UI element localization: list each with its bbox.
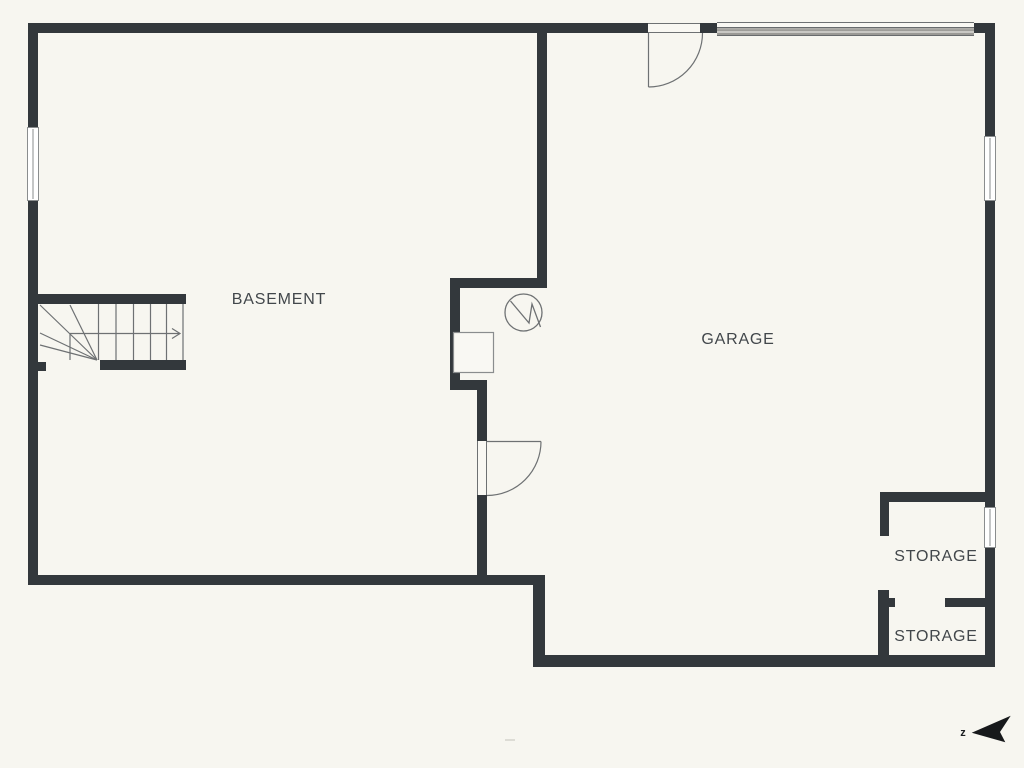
exterior-wall-right-upper xyxy=(985,23,995,137)
floor-plan-canvas: BASEMENT GARAGE STORAGE STORAGE z xyxy=(0,0,1024,768)
storage-wall-left-lower xyxy=(878,590,889,667)
storage-wall-top xyxy=(880,492,985,502)
stair-wall-stub xyxy=(38,362,46,371)
interior-wall-alcove-top xyxy=(450,278,547,288)
door-opening-top-wall xyxy=(648,23,700,33)
storage-divider-stub-left xyxy=(889,598,895,607)
room-label-storage-upper: STORAGE xyxy=(894,548,978,566)
stair-wall-top xyxy=(38,294,186,304)
window-right-wall-upper xyxy=(984,136,996,201)
storage-divider-right xyxy=(945,598,985,607)
interior-wall-alcove-left xyxy=(450,278,460,390)
garage-door-panel xyxy=(717,22,974,37)
room-label-garage: GARAGE xyxy=(701,331,774,349)
north-arrow-icon xyxy=(972,716,1011,743)
window-right-wall-storage xyxy=(984,507,996,548)
exterior-wall-bottom-basement xyxy=(28,575,545,585)
exterior-wall-right-middle xyxy=(985,200,995,508)
window-left-wall xyxy=(27,127,39,201)
swing-door-basement-garage xyxy=(487,442,541,496)
utility-circle-icon xyxy=(505,294,542,331)
interior-wall-basement-garage-upper xyxy=(537,33,547,288)
swing-door-top xyxy=(649,33,703,87)
room-label-storage-lower: STORAGE xyxy=(894,628,978,646)
room-label-basement: BASEMENT xyxy=(232,291,326,309)
exterior-wall-top-left xyxy=(28,23,648,33)
door-opening-basement-garage xyxy=(477,441,487,495)
exterior-wall-top-between-door-and-garage-door xyxy=(700,23,717,33)
exterior-wall-left-upper xyxy=(28,23,38,128)
interior-wall-above-door xyxy=(477,380,487,441)
interior-wall-below-door xyxy=(477,495,487,575)
exterior-wall-jog-vertical xyxy=(533,575,545,667)
exterior-wall-bottom-garage xyxy=(533,655,995,667)
storage-wall-left-upper xyxy=(880,492,889,536)
stair-wall-bottom xyxy=(100,360,186,370)
faint-watermark xyxy=(505,739,515,741)
compass-direction-label: z xyxy=(960,727,966,739)
exterior-wall-right-lower xyxy=(985,547,995,667)
symbols-overlay xyxy=(0,0,1024,768)
stairs-up-arrow xyxy=(40,304,183,360)
exterior-wall-left-lower xyxy=(28,200,38,585)
